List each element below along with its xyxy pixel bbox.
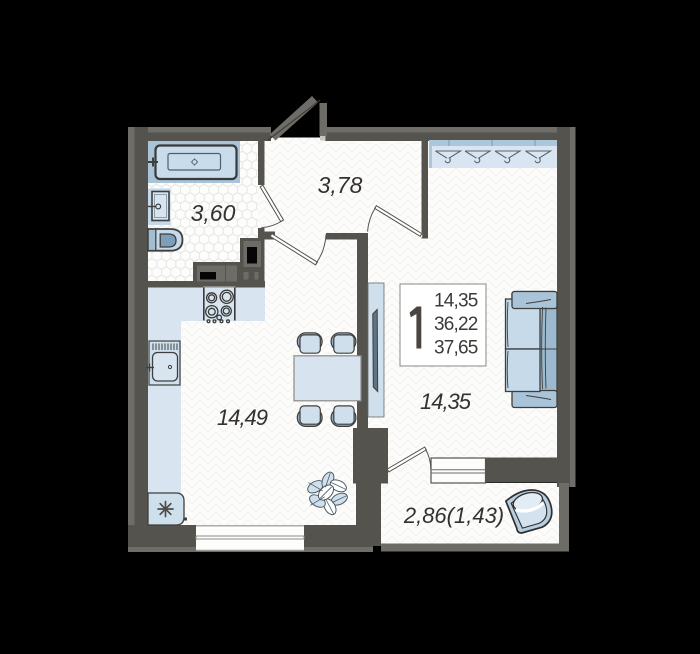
svg-text:14,49: 14,49 [217,405,268,430]
svg-text:36,22: 36,22 [434,314,478,335]
svg-text:14,35: 14,35 [434,291,478,312]
svg-text:14,35: 14,35 [420,389,472,414]
svg-text:3,78: 3,78 [318,172,363,198]
svg-text:2,86(1,43): 2,86(1,43) [403,503,504,528]
svg-text:3,60: 3,60 [191,200,236,226]
svg-text:37,65: 37,65 [434,338,478,359]
